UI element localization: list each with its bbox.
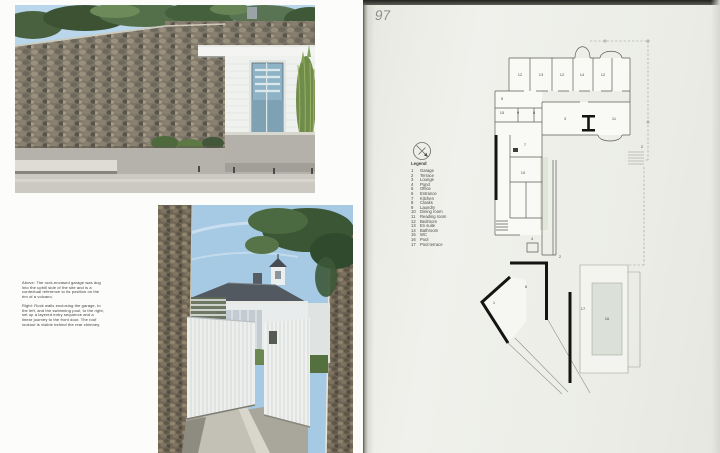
bay-arch (575, 47, 590, 58)
caption-right: Right: Rock walls enclosing the garage, … (22, 304, 104, 328)
room-number: 15 (500, 110, 505, 115)
left-gate (187, 317, 255, 419)
entry-path-photo (158, 205, 353, 453)
caption-block: Above: The rock-encased garage was dug i… (22, 281, 104, 331)
drive-lines (508, 320, 590, 394)
stone-wall-photo (15, 5, 315, 193)
room-number: 12 (601, 72, 606, 77)
entry-path-photo-art (158, 205, 353, 453)
page-top-edge (363, 0, 720, 5)
room-number: 17 (581, 306, 586, 311)
legend-item-number: 17 (411, 243, 420, 248)
floor-plan: 121312141231125159871046121716 (430, 22, 665, 397)
glass-door (249, 60, 286, 135)
caption-above: Above: The rock-encased garage was dug i… (22, 281, 104, 300)
skylight-strip (540, 157, 548, 230)
right-page: 97 Legend 1Garage2Terrace3Lounge4Pond5Of… (363, 0, 720, 453)
stone-wall-photo-art (15, 5, 315, 193)
room-number: 16 (605, 316, 610, 321)
stove (513, 148, 518, 152)
roof-vent (247, 7, 257, 19)
page-number: 97 (374, 7, 392, 23)
room-number: 14 (580, 72, 585, 77)
room-number: 4 (531, 236, 534, 241)
concrete-bench (15, 160, 117, 174)
room-number: 2 (641, 144, 644, 149)
room-number: 6 (525, 284, 528, 289)
left-stone-wall (158, 205, 192, 453)
room-number: 12 (518, 72, 523, 77)
pond (527, 243, 538, 252)
deck-stairs (628, 152, 644, 164)
room-number: 13 (539, 72, 544, 77)
room-number: 12 (560, 72, 565, 77)
eave-fascia (198, 47, 315, 56)
room-number: 2 (559, 254, 562, 259)
book-spread: Above: The rock-encased garage was dug i… (0, 0, 720, 453)
gate-letterbox (269, 331, 277, 344)
right-gate (264, 318, 310, 427)
room-number: 10 (521, 170, 526, 175)
